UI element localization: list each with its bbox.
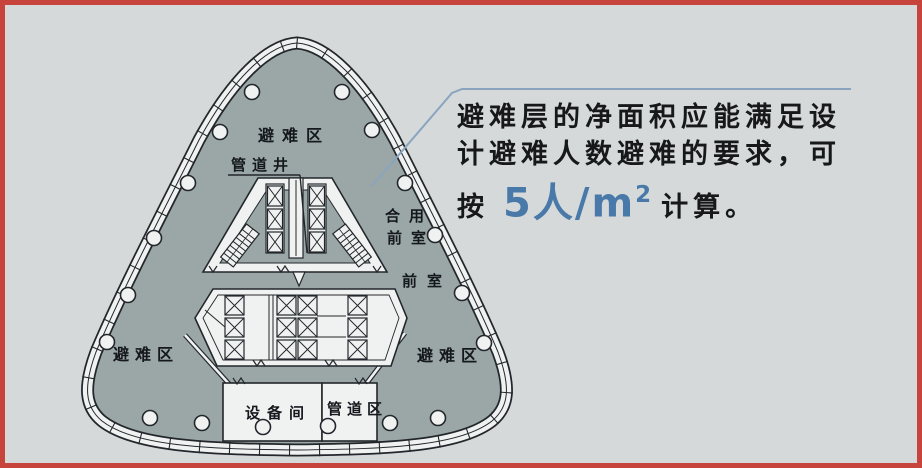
column bbox=[143, 411, 158, 426]
label-shared-lobby-1: 合用 bbox=[384, 207, 433, 225]
column bbox=[195, 416, 210, 431]
upper-right-elevator-bank bbox=[308, 184, 326, 253]
column bbox=[321, 419, 336, 434]
column bbox=[398, 176, 413, 191]
label-front-room: 前室 bbox=[402, 272, 452, 290]
column bbox=[365, 123, 380, 138]
floor-plan: 避难区 避难区 避难区 管道井 合用 前室 前室 设备间 管道区 bbox=[55, 15, 535, 467]
annotation-block: 避难层的净面积应能满足设 计避难人数避难的要求，可 按 5人/m2 计算。 bbox=[457, 99, 877, 226]
density-highlight: 5人/m2 bbox=[503, 175, 651, 223]
column bbox=[147, 231, 162, 246]
column bbox=[335, 85, 350, 100]
annotation-line-3-prefix: 按 bbox=[457, 189, 489, 226]
label-refuge-left: 避难区 bbox=[113, 345, 179, 364]
column bbox=[213, 125, 228, 140]
annotation-line-3-suffix: 计算。 bbox=[661, 189, 757, 226]
annotation-line-2: 计避难人数避难的要求，可 bbox=[457, 136, 877, 173]
column bbox=[455, 286, 470, 301]
label-pipe-zone: 管道区 bbox=[327, 400, 387, 418]
label-equipment-room: 设备间 bbox=[245, 404, 311, 422]
column bbox=[181, 176, 196, 191]
label-refuge-right: 避难区 bbox=[417, 346, 483, 365]
label-shared-lobby-2: 前室 bbox=[387, 229, 435, 247]
column bbox=[431, 411, 446, 426]
column bbox=[245, 85, 260, 100]
upper-left-elevator-bank bbox=[266, 184, 284, 253]
column bbox=[121, 288, 136, 303]
diagram-page: 避难区 避难区 避难区 管道井 合用 前室 前室 设备间 管道区 避难层的净面积… bbox=[0, 0, 922, 468]
annotation-line-3: 按 5人/m2 计算。 bbox=[457, 175, 877, 226]
annotation-line-1: 避难层的净面积应能满足设 bbox=[457, 99, 877, 136]
label-refuge-top: 避难区 bbox=[258, 126, 330, 145]
label-pipe-shaft: 管道井 bbox=[231, 156, 294, 174]
